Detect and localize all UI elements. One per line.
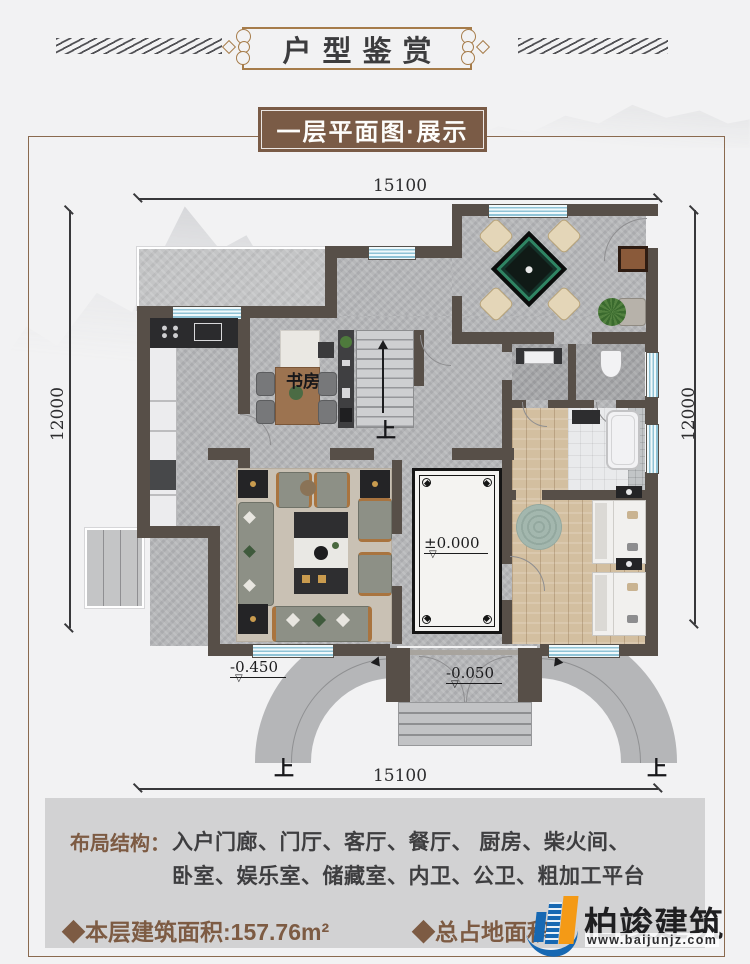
- wall: [568, 344, 576, 400]
- window: [548, 644, 620, 658]
- terrace-floor: [137, 247, 329, 310]
- bed: [592, 500, 646, 564]
- brand-url: www.baijunjz.com: [585, 933, 719, 947]
- porch-pillar: [518, 648, 542, 702]
- wall: [330, 448, 374, 460]
- side-table: [238, 604, 268, 634]
- round-table: [300, 480, 316, 496]
- layout-structure-label: 布局结构：: [70, 827, 170, 856]
- brand-logo: [527, 894, 581, 956]
- window: [646, 352, 659, 398]
- dimension-line-top: [138, 198, 658, 200]
- shelf: [338, 330, 354, 428]
- subtitle-text: 一层平面图·展示: [277, 112, 469, 147]
- dining-chair: [256, 400, 275, 424]
- side-platform-floor: [85, 528, 144, 608]
- ramp-right-up-label: 上: [647, 752, 667, 781]
- armchair: [314, 472, 350, 508]
- wall: [337, 246, 368, 258]
- wall: [502, 380, 512, 564]
- diamond-ornament-icon: [222, 40, 236, 54]
- corridor-floor: [337, 258, 452, 320]
- wall: [208, 526, 220, 656]
- subtitle-plaque: 一层平面图·展示: [258, 107, 487, 152]
- layout-line-1: 入户门廊、门厅、客厅、餐厅、 厨房、柴火间、: [172, 826, 630, 856]
- wall: [502, 490, 516, 500]
- wall: [645, 472, 658, 656]
- ramp-left-up-label: 上: [274, 752, 294, 781]
- diamond-ornament-icon: [476, 40, 490, 54]
- armchair: [358, 498, 392, 542]
- side-table: [238, 470, 268, 498]
- entry-door-lintel: [410, 650, 518, 655]
- window: [488, 204, 568, 218]
- wall: [208, 644, 252, 656]
- wall: [240, 306, 337, 318]
- dimension-right-label: 12000: [679, 383, 699, 445]
- dimension-top-label: 15100: [335, 176, 465, 196]
- side-table: [360, 470, 390, 498]
- wall: [645, 396, 658, 424]
- armchair: [358, 552, 392, 596]
- dimension-bottom-label: 15100: [330, 766, 470, 786]
- bed: [592, 572, 646, 636]
- floor-area-text: ◆本层建筑面积:157.76m²: [62, 913, 329, 947]
- bathtub: [606, 410, 640, 470]
- stairs-up-label: 上: [376, 414, 396, 443]
- night-stand: [616, 558, 642, 570]
- wall: [392, 460, 402, 534]
- wall: [392, 586, 402, 644]
- level-marker-icon: ▽: [451, 679, 459, 690]
- hatch-decoration-left: [56, 38, 222, 54]
- wall: [452, 204, 488, 216]
- page-title: 户型鉴赏: [271, 28, 442, 70]
- wall: [332, 644, 390, 656]
- scroll-ornament-icon: [236, 51, 250, 65]
- stairs-arrow-icon: [378, 340, 388, 349]
- poster: 户型鉴赏 一层平面图·展示 15100 15100 12000 12000: [0, 0, 750, 964]
- sofa-bottom: [272, 606, 372, 642]
- study-label: 书房: [286, 367, 320, 392]
- page-title-box: 户型鉴赏: [242, 27, 472, 70]
- wall: [548, 400, 594, 408]
- coffee-table: [294, 512, 348, 594]
- stairs-arrow-line: [382, 349, 384, 413]
- dimension-line-left: [69, 210, 71, 628]
- toilet: [600, 350, 622, 378]
- dimension-line-bottom: [138, 788, 658, 790]
- porch-pillar: [386, 648, 410, 702]
- level-label-porch: -0.050 ▽: [446, 664, 502, 684]
- wall: [502, 332, 512, 352]
- cabinet: [318, 342, 334, 358]
- round-rug: [516, 504, 562, 550]
- hatch-decoration-right: [518, 38, 668, 54]
- dining-chair: [318, 400, 337, 424]
- level-marker-icon: ▽: [429, 549, 437, 560]
- window: [646, 424, 659, 474]
- wall: [645, 332, 658, 352]
- wall: [137, 306, 150, 538]
- dimension-left-label: 12000: [48, 383, 68, 445]
- scroll-ornament-icon: [461, 51, 475, 65]
- sink: [524, 351, 554, 364]
- window: [252, 644, 334, 658]
- stove: [618, 246, 648, 272]
- dining-chair: [256, 372, 275, 396]
- plant: [598, 298, 626, 326]
- level-marker-icon: ▽: [235, 673, 243, 684]
- cooktop-icon: [158, 323, 182, 340]
- sofa-left: [238, 502, 274, 606]
- level-label-foyer: ±0.000 ▽: [424, 534, 488, 554]
- porch-steps: [398, 702, 532, 746]
- vanity: [572, 410, 600, 424]
- wall: [566, 204, 658, 216]
- wall: [452, 216, 462, 258]
- wall: [414, 246, 454, 258]
- layout-line-2: 卧室、娱乐室、储藏室、内卫、公卫、粗加工平台: [172, 860, 645, 890]
- wall: [238, 318, 250, 414]
- dining-chair: [318, 372, 337, 396]
- fridge-column: [150, 348, 177, 526]
- window: [368, 246, 416, 260]
- island-counter: [280, 330, 320, 369]
- wall: [502, 600, 512, 644]
- sink-icon: [194, 323, 222, 341]
- night-stand: [616, 486, 642, 498]
- wall: [208, 448, 248, 460]
- level-label-ramp: -0.450 ▽: [230, 658, 286, 678]
